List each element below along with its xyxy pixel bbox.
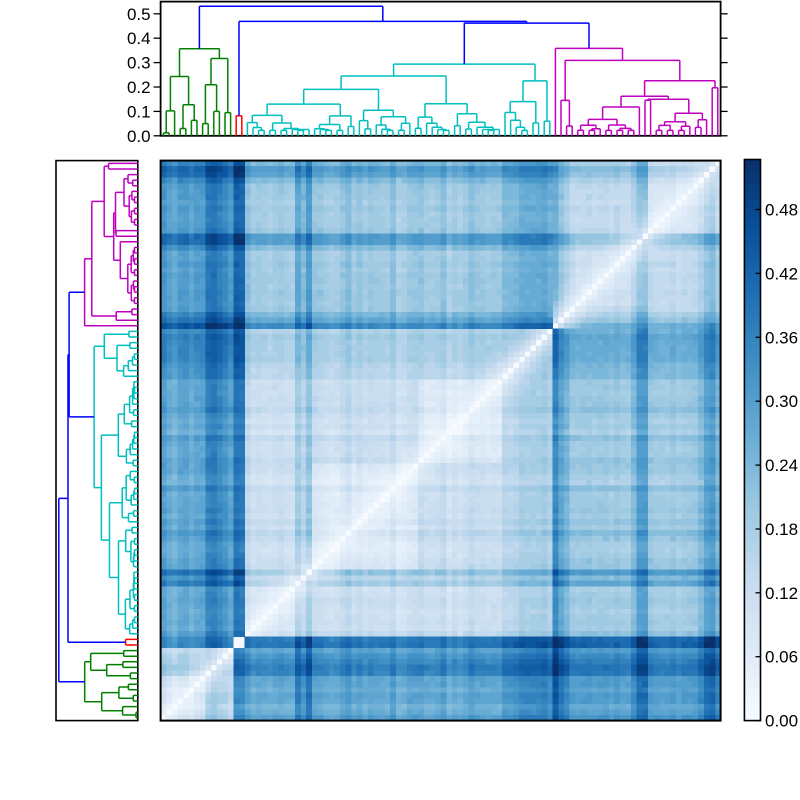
svg-text:0.0: 0.0	[127, 127, 151, 146]
svg-text:0.30: 0.30	[765, 392, 798, 411]
svg-text:0.3: 0.3	[127, 54, 151, 73]
svg-text:0.06: 0.06	[765, 648, 798, 667]
svg-text:0.42: 0.42	[765, 264, 798, 283]
svg-text:0.1: 0.1	[127, 102, 151, 121]
svg-text:0.24: 0.24	[765, 456, 798, 475]
svg-text:0.00: 0.00	[765, 712, 798, 731]
svg-text:0.2: 0.2	[127, 78, 151, 97]
svg-text:0.48: 0.48	[765, 201, 798, 220]
svg-text:0.18: 0.18	[765, 520, 798, 539]
svg-text:0.5: 0.5	[127, 5, 151, 24]
svg-text:0.12: 0.12	[765, 584, 798, 603]
svg-text:0.4: 0.4	[127, 29, 151, 48]
svg-text:0.36: 0.36	[765, 328, 798, 347]
